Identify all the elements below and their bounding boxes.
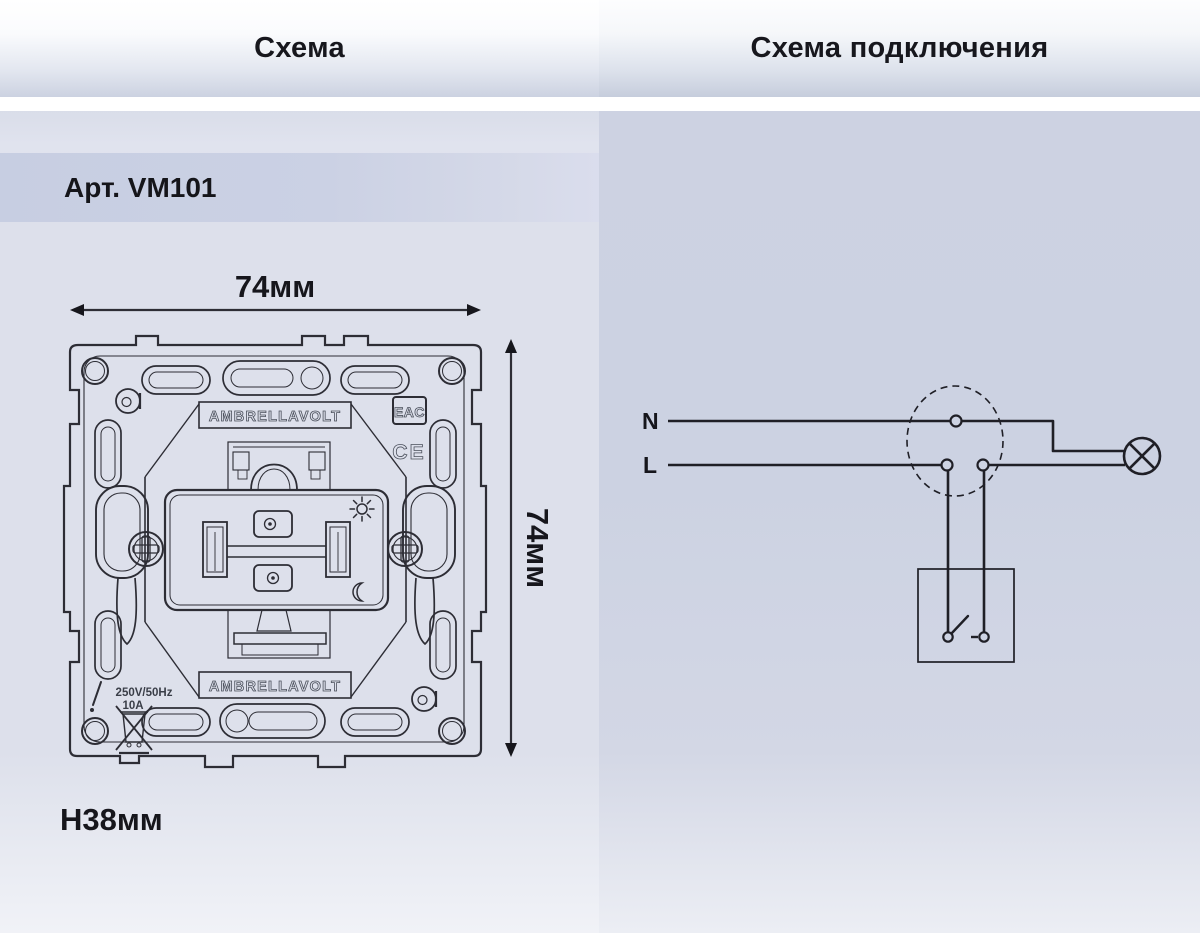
terminal-node (951, 416, 962, 427)
sun-icon (350, 497, 374, 521)
arrow-up-icon (505, 339, 517, 353)
rocker (165, 490, 388, 610)
neutral-wire (668, 421, 1125, 451)
height-dimension: 74мм (505, 339, 555, 757)
brand-logo-icon (116, 389, 140, 413)
mechanism-body: AMBRELLAVOLT AMBRELLAVOLT (145, 402, 406, 698)
mechanism-top-detail (228, 442, 330, 490)
brand-logo-icon (412, 687, 436, 711)
switch-contact (979, 632, 988, 641)
terminal-node (978, 460, 989, 471)
mechanism-bottom-detail (228, 610, 330, 658)
switch-box (918, 569, 1014, 662)
voltage-rating-label: 250V/50Hz (116, 687, 173, 699)
width-dimension: 74мм (70, 269, 481, 316)
wiring-panel: N L (599, 111, 1200, 933)
mounting-slot (142, 361, 409, 395)
scheme-title: Схема (254, 32, 345, 65)
current-rating-label: 10A (122, 700, 143, 712)
switch-mechanism-drawing: 74мм 74мм Н38мм (0, 111, 599, 933)
eac-mark: EAC (393, 397, 426, 424)
width-dimension-label: 74мм (235, 269, 315, 304)
brand-text-top: AMBRELLAVOLT (209, 409, 341, 425)
brand-text-bottom: AMBRELLAVOLT (209, 679, 341, 695)
neutral-label: N (642, 408, 659, 434)
eac-text: EAC (394, 404, 425, 420)
junction-box-circle (907, 386, 1003, 496)
switch-lever (951, 616, 968, 634)
phillips-screw-icon (388, 532, 422, 566)
switch-contact (943, 632, 952, 641)
arrow-left-icon (70, 304, 84, 316)
moon-icon (353, 583, 362, 601)
ce-mark: CE (392, 441, 425, 464)
depth-dimension-label: Н38мм (60, 802, 163, 837)
header-scheme: Схема (0, 0, 599, 97)
wiring-title: Схема подключения (751, 32, 1049, 65)
terminal-node (942, 460, 953, 471)
wiring-diagram: N L (599, 111, 1200, 933)
height-dimension-label: 74мм (520, 508, 555, 588)
lamp-icon (1124, 438, 1160, 474)
scheme-panel: Арт. VM101 74мм 74мм Н38мм (0, 111, 599, 933)
weee-bin-icon (116, 706, 152, 753)
pen-icon (90, 682, 101, 712)
arrow-right-icon (467, 304, 481, 316)
phillips-screw-icon (129, 532, 163, 566)
arrow-down-icon (505, 743, 517, 757)
line-label: L (643, 452, 657, 478)
product-spec-page: Схема Схема подключения Арт. VM101 74мм … (0, 0, 1200, 933)
header-wiring: Схема подключения (599, 0, 1200, 97)
mounting-slot (142, 704, 409, 738)
